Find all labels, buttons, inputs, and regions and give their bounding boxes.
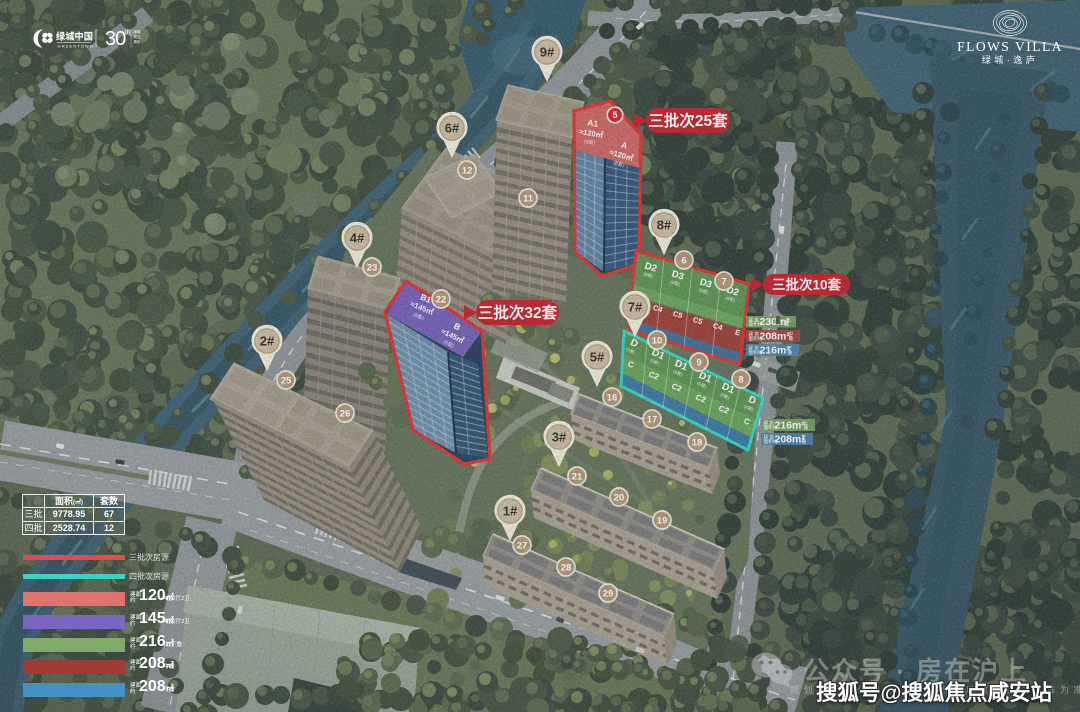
svg-text:绿城: 绿城 [134, 29, 141, 34]
svg-text:30: 30 [105, 28, 126, 50]
svg-text:FLOWS VILLA: FLOWS VILLA [957, 39, 1063, 54]
svg-text:成立: 成立 [134, 34, 141, 39]
svg-text:GREENTOWN: GREENTOWN [58, 44, 94, 49]
svg-text:绿城中国: 绿城中国 [56, 31, 93, 42]
svg-text:周年: 周年 [134, 39, 141, 44]
svg-text:绿城·逸庐: 绿城·逸庐 [982, 54, 1039, 65]
svg-text:th: th [125, 30, 130, 36]
